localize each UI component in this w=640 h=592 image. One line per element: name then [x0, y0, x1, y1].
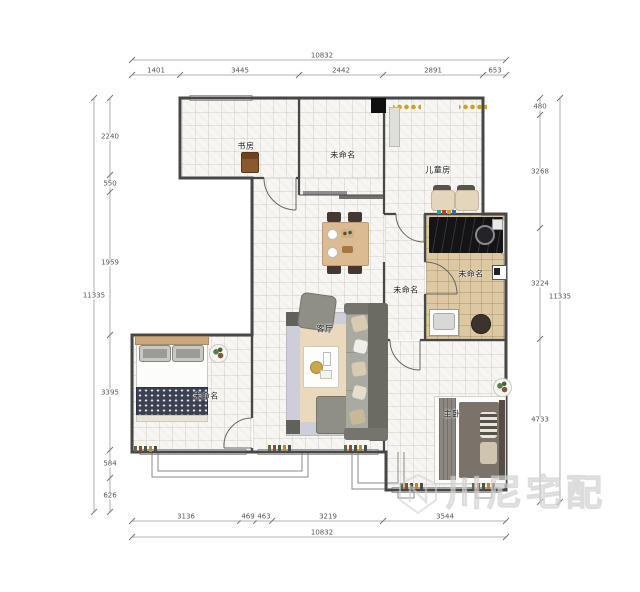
dim-top-seg: 2442	[331, 68, 351, 75]
bed-left-headboard	[135, 336, 209, 345]
coffee-table-remote	[323, 352, 331, 366]
dim-left-total: 11335	[82, 293, 106, 300]
sill-plants	[268, 445, 294, 451]
dim-right-seg: 4733	[530, 417, 550, 424]
bed-master-pillow-striped	[480, 412, 497, 438]
bed-left-pillow	[139, 345, 171, 362]
washbasin-bowl	[433, 313, 455, 330]
bed-left-pillow	[172, 345, 204, 362]
dim-left-seg: 550	[102, 181, 117, 188]
dim-right-seg: 3268	[530, 169, 550, 176]
master-plant[interactable]	[493, 378, 512, 397]
dining-plate	[327, 247, 338, 258]
sofa-pillow	[351, 361, 367, 377]
sill-plants	[344, 445, 370, 451]
sofa-armrest-bottom[interactable]	[344, 428, 388, 440]
bed-left-foot	[136, 415, 208, 422]
watermark: 川尼宅配	[396, 472, 606, 516]
room-label-children: 儿童房	[425, 165, 451, 176]
dim-top-seg: 653	[487, 68, 502, 75]
dim-bottom-seg: 3136	[176, 514, 196, 521]
dining-chair[interactable]	[348, 212, 362, 222]
dim-top-seg: 2891	[423, 68, 443, 75]
children-seat[interactable]	[455, 190, 479, 211]
bed-master-headboard	[499, 400, 505, 480]
trash-bin[interactable]	[471, 314, 491, 334]
dim-bottom-seg: 469	[240, 514, 255, 521]
coffee-table-box	[320, 370, 332, 379]
dim-top-seg: 1401	[146, 68, 166, 75]
dining-food	[341, 229, 354, 238]
children-seat[interactable]	[431, 190, 455, 211]
dining-chair[interactable]	[327, 212, 341, 222]
rug-corner	[286, 420, 300, 434]
room-label-kitchen: 未命名	[458, 269, 484, 280]
room-label-living: 客厅	[317, 324, 334, 335]
dim-bottom-seg: 463	[256, 514, 271, 521]
floor-plan-canvas: 书房 未命名 儿童房 未命名 未命名 客厅 未命名 主卧 10832 1401 …	[0, 0, 640, 592]
microwave-door	[494, 268, 500, 275]
room-hallway-floor	[385, 214, 425, 340]
room-label-bedroom-left: 未命名	[193, 391, 219, 402]
sofa-pillow	[353, 339, 368, 354]
children-wardrobe[interactable]	[389, 107, 400, 147]
dim-bottom-seg: 3219	[318, 514, 338, 521]
dim-right-seg: 3224	[530, 281, 550, 288]
room-label-unnamed-top: 未命名	[330, 150, 356, 161]
sofa-back[interactable]	[368, 303, 388, 441]
dim-top-seg: 3445	[230, 68, 250, 75]
kitchen-hood	[492, 219, 503, 230]
children-toys	[437, 210, 463, 214]
room-label-master: 主卧	[444, 409, 461, 420]
dim-left-seg: 626	[102, 493, 117, 500]
dim-left-seg: 584	[102, 461, 117, 468]
study-chair[interactable]	[241, 152, 259, 173]
dim-left-seg: 3395	[100, 390, 120, 397]
dining-food	[342, 246, 353, 253]
watermark-text: 川尼宅配	[446, 476, 606, 512]
dim-left-seg: 1959	[100, 260, 120, 267]
dim-top-total: 10832	[310, 53, 334, 60]
watermark-logo-icon	[396, 472, 440, 516]
sill-plants	[134, 446, 160, 452]
room-label-hallway: 未命名	[393, 285, 419, 296]
dim-right-seg: 480	[532, 104, 547, 111]
room-label-study: 书房	[238, 141, 255, 152]
dim-bottom-total: 10832	[310, 530, 334, 537]
dim-left-seg: 2240	[100, 134, 120, 141]
bedroom-left-plant[interactable]	[209, 344, 228, 363]
dim-right-total: 11335	[548, 294, 572, 301]
bed-master-pillow	[480, 442, 497, 464]
dining-plate	[327, 229, 338, 240]
children-wall-decor	[459, 101, 487, 111]
